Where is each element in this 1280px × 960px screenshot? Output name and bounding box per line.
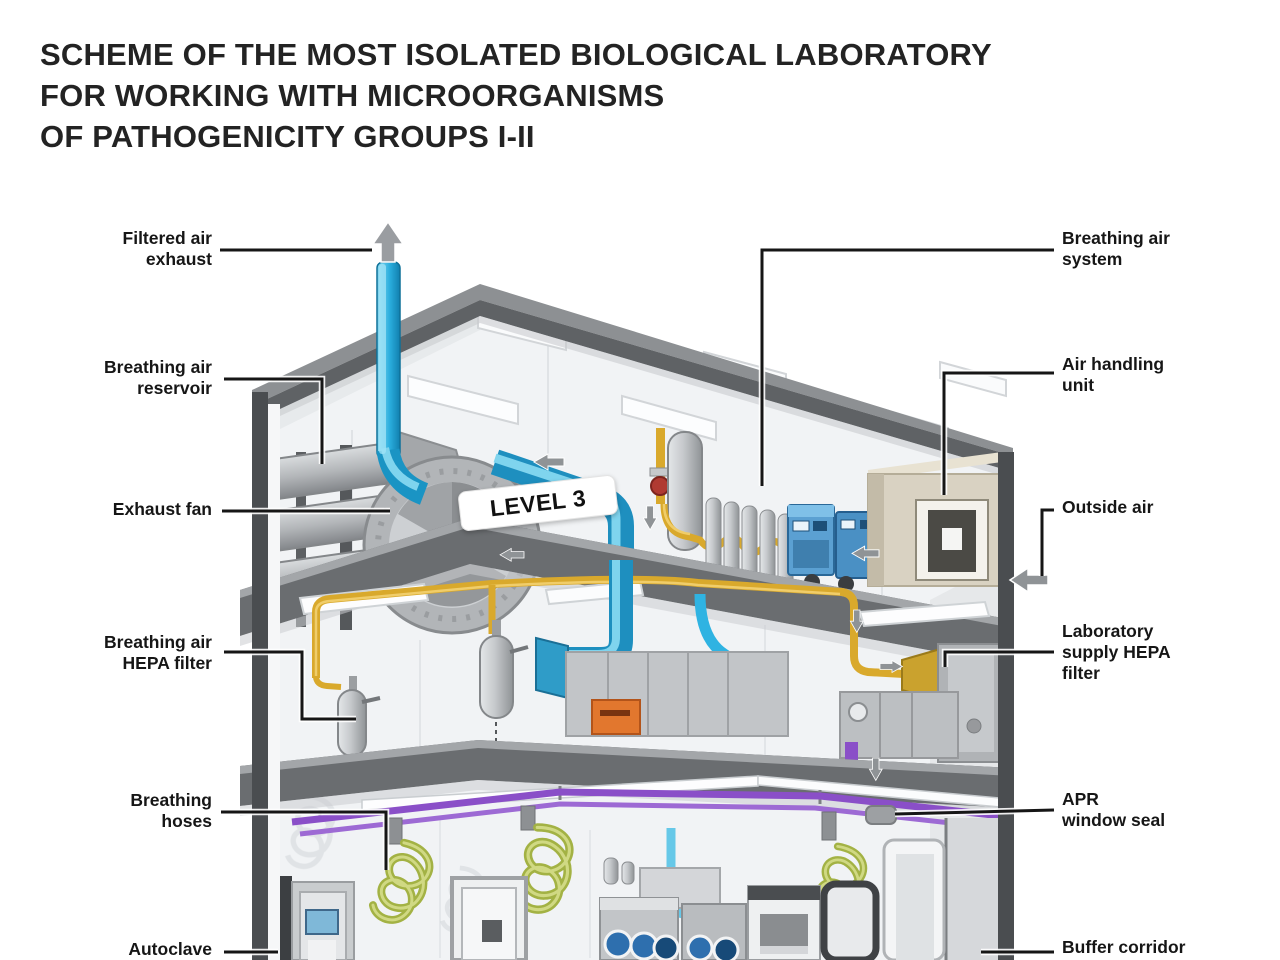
autoclave-unit: [268, 876, 354, 960]
label-breathing-air-system: Breathing air system: [1062, 228, 1272, 270]
level-3-badge-text: LEVEL 3: [489, 484, 588, 522]
label-apr-window-seal: APR window seal: [1062, 789, 1272, 831]
label-filtered-air-exhaust: Filtered air exhaust: [20, 228, 212, 270]
label-breathing-air-hepa-filter: Breathing air HEPA filter: [20, 632, 212, 674]
label-air-handling-unit: Air handling unit: [1062, 354, 1272, 396]
title-line-2: FOR WORKING WITH MICROORGANISMS: [40, 75, 1190, 116]
mid-level-equipment-bank: [566, 652, 788, 736]
label-autoclave: Autoclave: [20, 939, 212, 960]
label-laboratory-supply-hepa-filter: Laboratory supply HEPA filter: [1062, 621, 1272, 684]
label-buffer-corridor: Buffer corridor: [1062, 937, 1272, 958]
label-breathing-hoses: Breathing hoses: [20, 790, 212, 832]
exhaust-up-arrow-icon: [373, 222, 403, 262]
title-line-1: SCHEME OF THE MOST ISOLATED BIOLOGICAL L…: [40, 34, 1190, 75]
lab-door: [452, 878, 526, 960]
label-breathing-air-reservoir: Breathing air reservoir: [20, 357, 212, 399]
glove-box-frame: [824, 884, 876, 960]
page-title: SCHEME OF THE MOST ISOLATED BIOLOGICAL L…: [40, 34, 1190, 157]
biosafety-cabinet: [748, 886, 820, 960]
infographic-page: SCHEME OF THE MOST ISOLATED BIOLOGICAL L…: [0, 0, 1280, 960]
label-outside-air: Outside air: [1062, 497, 1272, 518]
title-line-3: OF PATHOGENICITY GROUPS I-II: [40, 116, 1190, 157]
label-exhaust-fan: Exhaust fan: [20, 499, 212, 520]
